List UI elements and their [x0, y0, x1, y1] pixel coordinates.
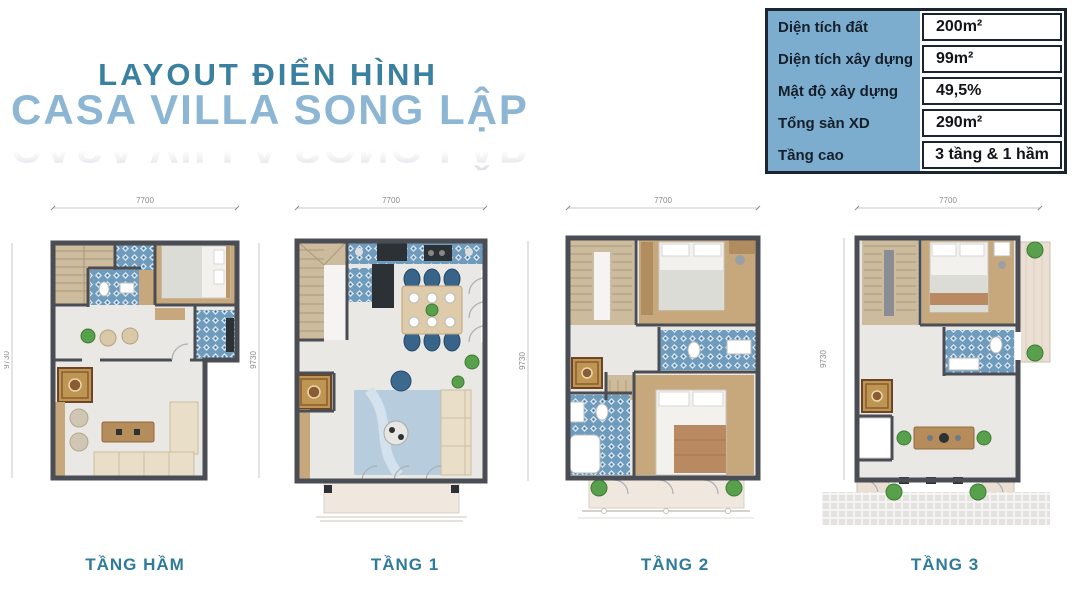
tile-patch — [347, 268, 372, 302]
side-terrace — [1018, 242, 1050, 362]
bathroom — [90, 270, 139, 305]
spec-value: 3 tầng & 1 hầm — [922, 141, 1062, 169]
floor-plans-row: 7700 9730 9730 — [0, 190, 1080, 590]
elevator-rug — [58, 368, 92, 402]
staircase — [297, 241, 347, 340]
side-table — [391, 371, 411, 391]
spec-row-land-area: Diện tích đất 200m² — [768, 11, 1064, 43]
elevator-rug — [862, 380, 892, 412]
bathroom-2 — [568, 395, 630, 475]
staircase — [862, 238, 918, 325]
dimension-top: 7700 — [566, 196, 760, 210]
plant — [452, 376, 464, 388]
svg-text:9730: 9730 — [249, 351, 258, 369]
dimension-left: 9730 — [819, 238, 844, 480]
floor-label: TẦNG 3 — [911, 555, 979, 575]
spec-label: Tổng sàn XD — [768, 107, 920, 139]
bedroom-2 — [634, 375, 754, 475]
page-subtitle-reflection: CASA VILLA SONG LẬP — [5, 126, 535, 170]
svg-text:7700: 7700 — [654, 196, 672, 205]
dimension-top: 7700 — [295, 196, 487, 210]
floor-plan-floor3-drawing: 7700 9730 — [814, 190, 1076, 525]
spec-row-density: Mật độ xây dựng 49,5% — [768, 75, 1064, 107]
floor-plan-floor3: 7700 9730 — [810, 190, 1080, 590]
floor-plan-floor2: 7700 — [540, 190, 810, 590]
pantry-unit — [372, 264, 394, 308]
dimension-top: 7700 — [855, 196, 1042, 210]
paved-terrace — [822, 484, 1050, 525]
bar-stools — [81, 328, 138, 346]
bench — [155, 308, 185, 320]
dining-set — [402, 269, 462, 351]
dimension-top: 7700 — [51, 196, 239, 210]
svg-text:9730: 9730 — [518, 352, 527, 370]
floor-label: TẦNG 2 — [641, 555, 709, 575]
svg-text:9730: 9730 — [819, 350, 828, 368]
open-void — [857, 418, 892, 458]
porch — [316, 483, 467, 521]
svg-text:9730: 9730 — [4, 351, 11, 369]
bathroom-1 — [659, 330, 758, 370]
page-subtitle-block: CASA VILLA SONG LẬP CASA VILLA SONG LẬP — [5, 88, 535, 170]
plant — [465, 355, 479, 369]
spec-value: 99m² — [922, 45, 1062, 73]
floor-plan-floor2-drawing: 7700 — [544, 190, 806, 525]
spec-label: Diện tích đất — [768, 11, 920, 43]
bedroom — [155, 243, 237, 305]
spec-row-built-area: Diện tích xây dựng 99m² — [768, 43, 1064, 75]
hall-wood-floor — [139, 270, 155, 305]
spec-label: Tầng cao — [768, 139, 920, 171]
floor-label: TẦNG HẦM — [85, 555, 185, 575]
specs-table: Diện tích đất 200m² Diện tích xây dựng 9… — [765, 8, 1067, 174]
round-table — [384, 421, 408, 445]
dimension-right: 9730 — [518, 241, 528, 481]
balcony — [578, 480, 754, 518]
sofa — [441, 390, 471, 475]
dimension-left: 9730 — [4, 243, 12, 478]
elevator-rug — [297, 375, 331, 409]
coffee-table — [102, 422, 154, 442]
spec-label: Mật độ xây dựng — [768, 75, 920, 107]
bathroom-tile-strip — [115, 243, 155, 270]
staircase — [568, 238, 634, 325]
spec-value: 49,5% — [922, 77, 1062, 105]
floor-plan-basement: 7700 9730 9730 — [0, 190, 270, 590]
floor-label: TẦNG 1 — [371, 555, 439, 575]
spec-label: Diện tích xây dựng — [768, 43, 920, 75]
spec-value: 200m² — [922, 13, 1062, 41]
spec-value: 290m² — [922, 109, 1062, 137]
floor-plan-floor1-drawing: 7700 9730 — [274, 190, 536, 525]
bedroom-1 — [639, 238, 758, 325]
svg-text:7700: 7700 — [382, 196, 400, 205]
svg-text:7700: 7700 — [939, 196, 957, 205]
bedroom — [922, 238, 1014, 325]
terrace-door-opening — [1015, 332, 1021, 360]
spec-row-total-floor: Tổng sàn XD 290m² — [768, 107, 1064, 139]
utility-room — [195, 310, 237, 358]
floor-plan-floor1: 7700 9730 — [270, 190, 540, 590]
bathroom — [944, 330, 1014, 374]
svg-text:7700: 7700 — [136, 196, 154, 205]
kitchen-counter — [347, 241, 485, 264]
spec-row-height: Tầng cao 3 tầng & 1 hầm — [768, 139, 1064, 171]
dimension-right: 9730 — [249, 243, 259, 478]
elevator-rug — [572, 358, 602, 388]
floor-plan-basement-drawing: 7700 9730 9730 — [4, 190, 266, 525]
